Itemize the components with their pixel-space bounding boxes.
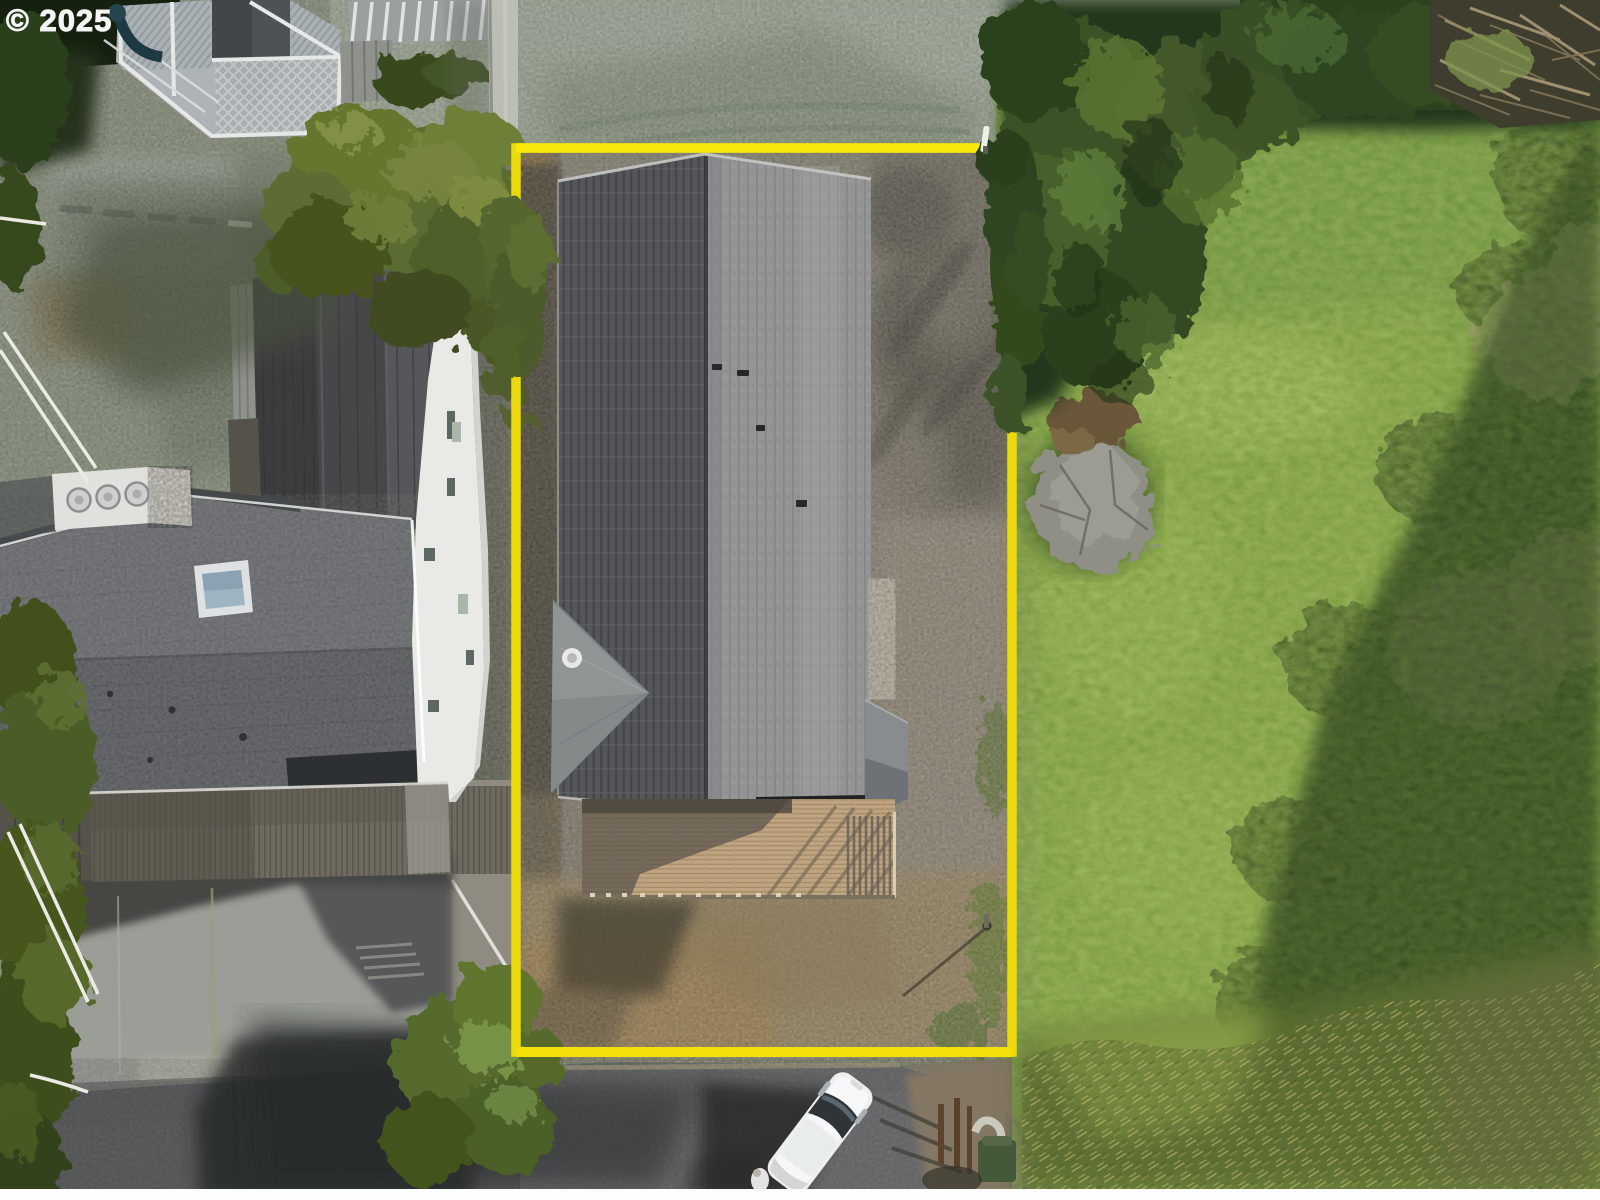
svg-text:© 2025: © 2025 <box>6 3 112 38</box>
